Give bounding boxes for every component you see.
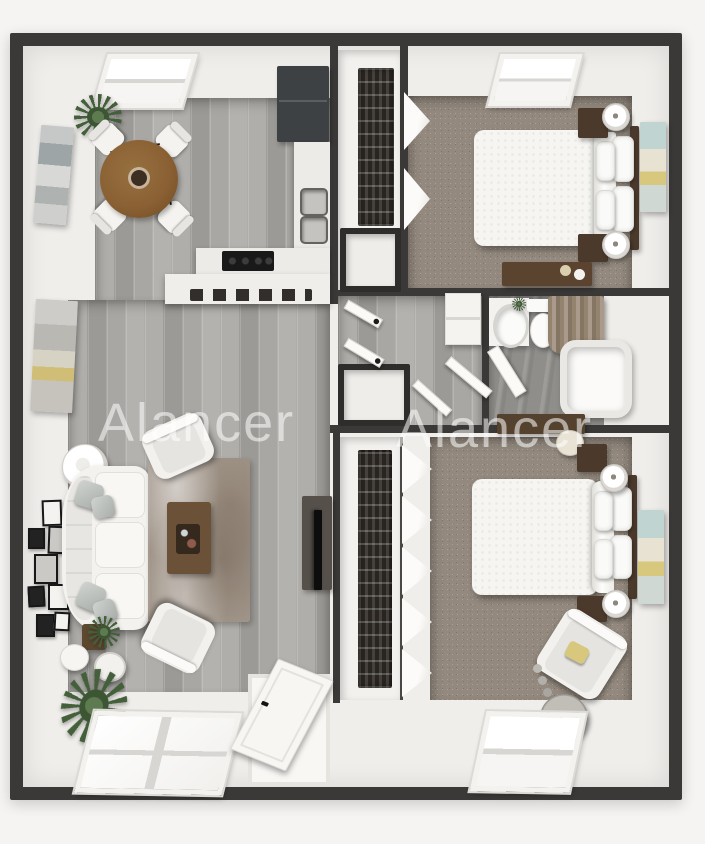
bedroom1-bed-duvet [474,130,602,246]
hanging-clothes [358,68,394,226]
bedroom1-dresser [502,262,592,286]
wall-art [640,122,666,212]
hanging-clothes [358,450,392,688]
floor-plan-render: Alancer Alancer [0,0,705,844]
table-lamp [600,464,628,492]
vanity-plant [512,297,526,311]
gallery-frame [42,500,63,527]
bathroom-sink [493,304,529,348]
linen-cabinet [445,293,481,345]
wall-art [638,510,664,604]
breakfast-bar-louver-vent [190,289,312,301]
wall-kitchen-closet [330,46,338,304]
gallery-frame [27,586,45,608]
bed-pillow [612,136,634,182]
gallery-frame [36,614,55,637]
bedroom1-skylight-window [488,54,583,106]
sofa-seat-cushion [95,522,145,568]
bedroom2-window [470,711,587,793]
table-lamp [602,231,630,259]
refrigerator-door-seam [279,100,327,102]
gallery-frame [34,554,58,584]
bed-pillow [594,491,613,531]
bed-pillow [612,186,634,232]
tv-screen [314,510,322,590]
bed-pillow [596,141,615,181]
bed-pillow [596,190,615,230]
floor-lamp-pole [533,664,542,673]
coffee-table-decor-tray [176,524,200,554]
bed-pillow [610,535,632,579]
utility-closet [340,228,401,292]
table-centerpiece [131,170,147,186]
kitchen-sink-basin [300,188,328,216]
table-lamp [602,590,630,618]
bedroom2-bed-duvet [472,479,598,595]
dresser-decor [560,265,571,276]
bed-pillow [610,487,632,531]
refrigerator [277,66,329,142]
hall-utility-cabinet [338,364,410,426]
kitchen-sink-basin [300,216,328,244]
table-lamp [602,103,630,131]
gallery-frame [54,612,71,632]
wall-hall-bathroom [482,296,489,433]
bed-pillow [594,539,613,579]
gallery-frame [28,528,45,549]
wall-living-closet2 [333,433,340,703]
accent-stool [60,644,89,671]
living-room-window [74,711,242,796]
side-table-plant [88,616,120,648]
bathtub [560,340,632,418]
wall-art [30,299,78,413]
stove-cooktop [222,251,274,271]
